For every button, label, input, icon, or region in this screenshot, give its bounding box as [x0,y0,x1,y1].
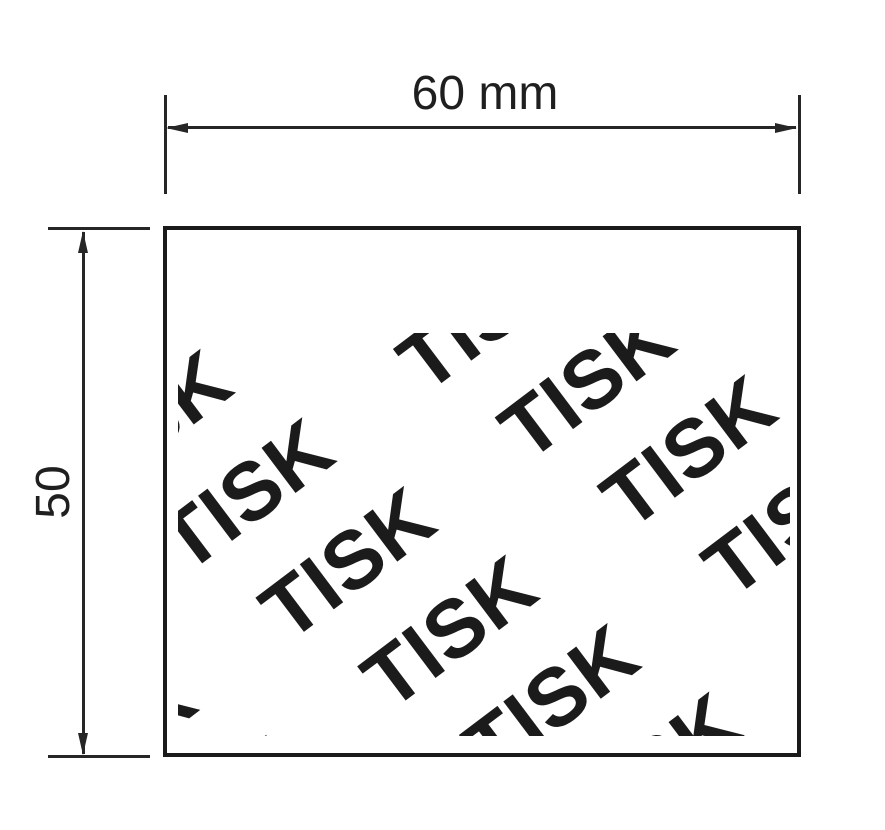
width-dimension-line [168,126,796,129]
width-arrowhead-left-icon [166,123,188,133]
height-extension-line-bottom [48,755,150,758]
height-arrowhead-top-icon [78,231,88,253]
watermark-pattern: TISK TISK TISK TISK TISK TISK TISKTISK T… [178,333,790,736]
width-arrowhead-right-icon [775,123,797,133]
width-dimension-label: 60 mm [412,70,559,118]
watermark-rotated-layer: TISK TISK TISK TISK TISK TISK TISKTISK T… [178,333,790,736]
height-dimension-line [82,232,85,754]
height-dimension-label: 50 [30,465,78,518]
label-dimension-diagram: 60 mm 50 TISK TISK TISK TISK TISK TISK T… [0,0,885,830]
width-extension-line-left [164,95,167,194]
width-extension-line-right [798,95,801,194]
height-arrowhead-bottom-icon [78,733,88,755]
height-extension-line-top [48,227,150,230]
